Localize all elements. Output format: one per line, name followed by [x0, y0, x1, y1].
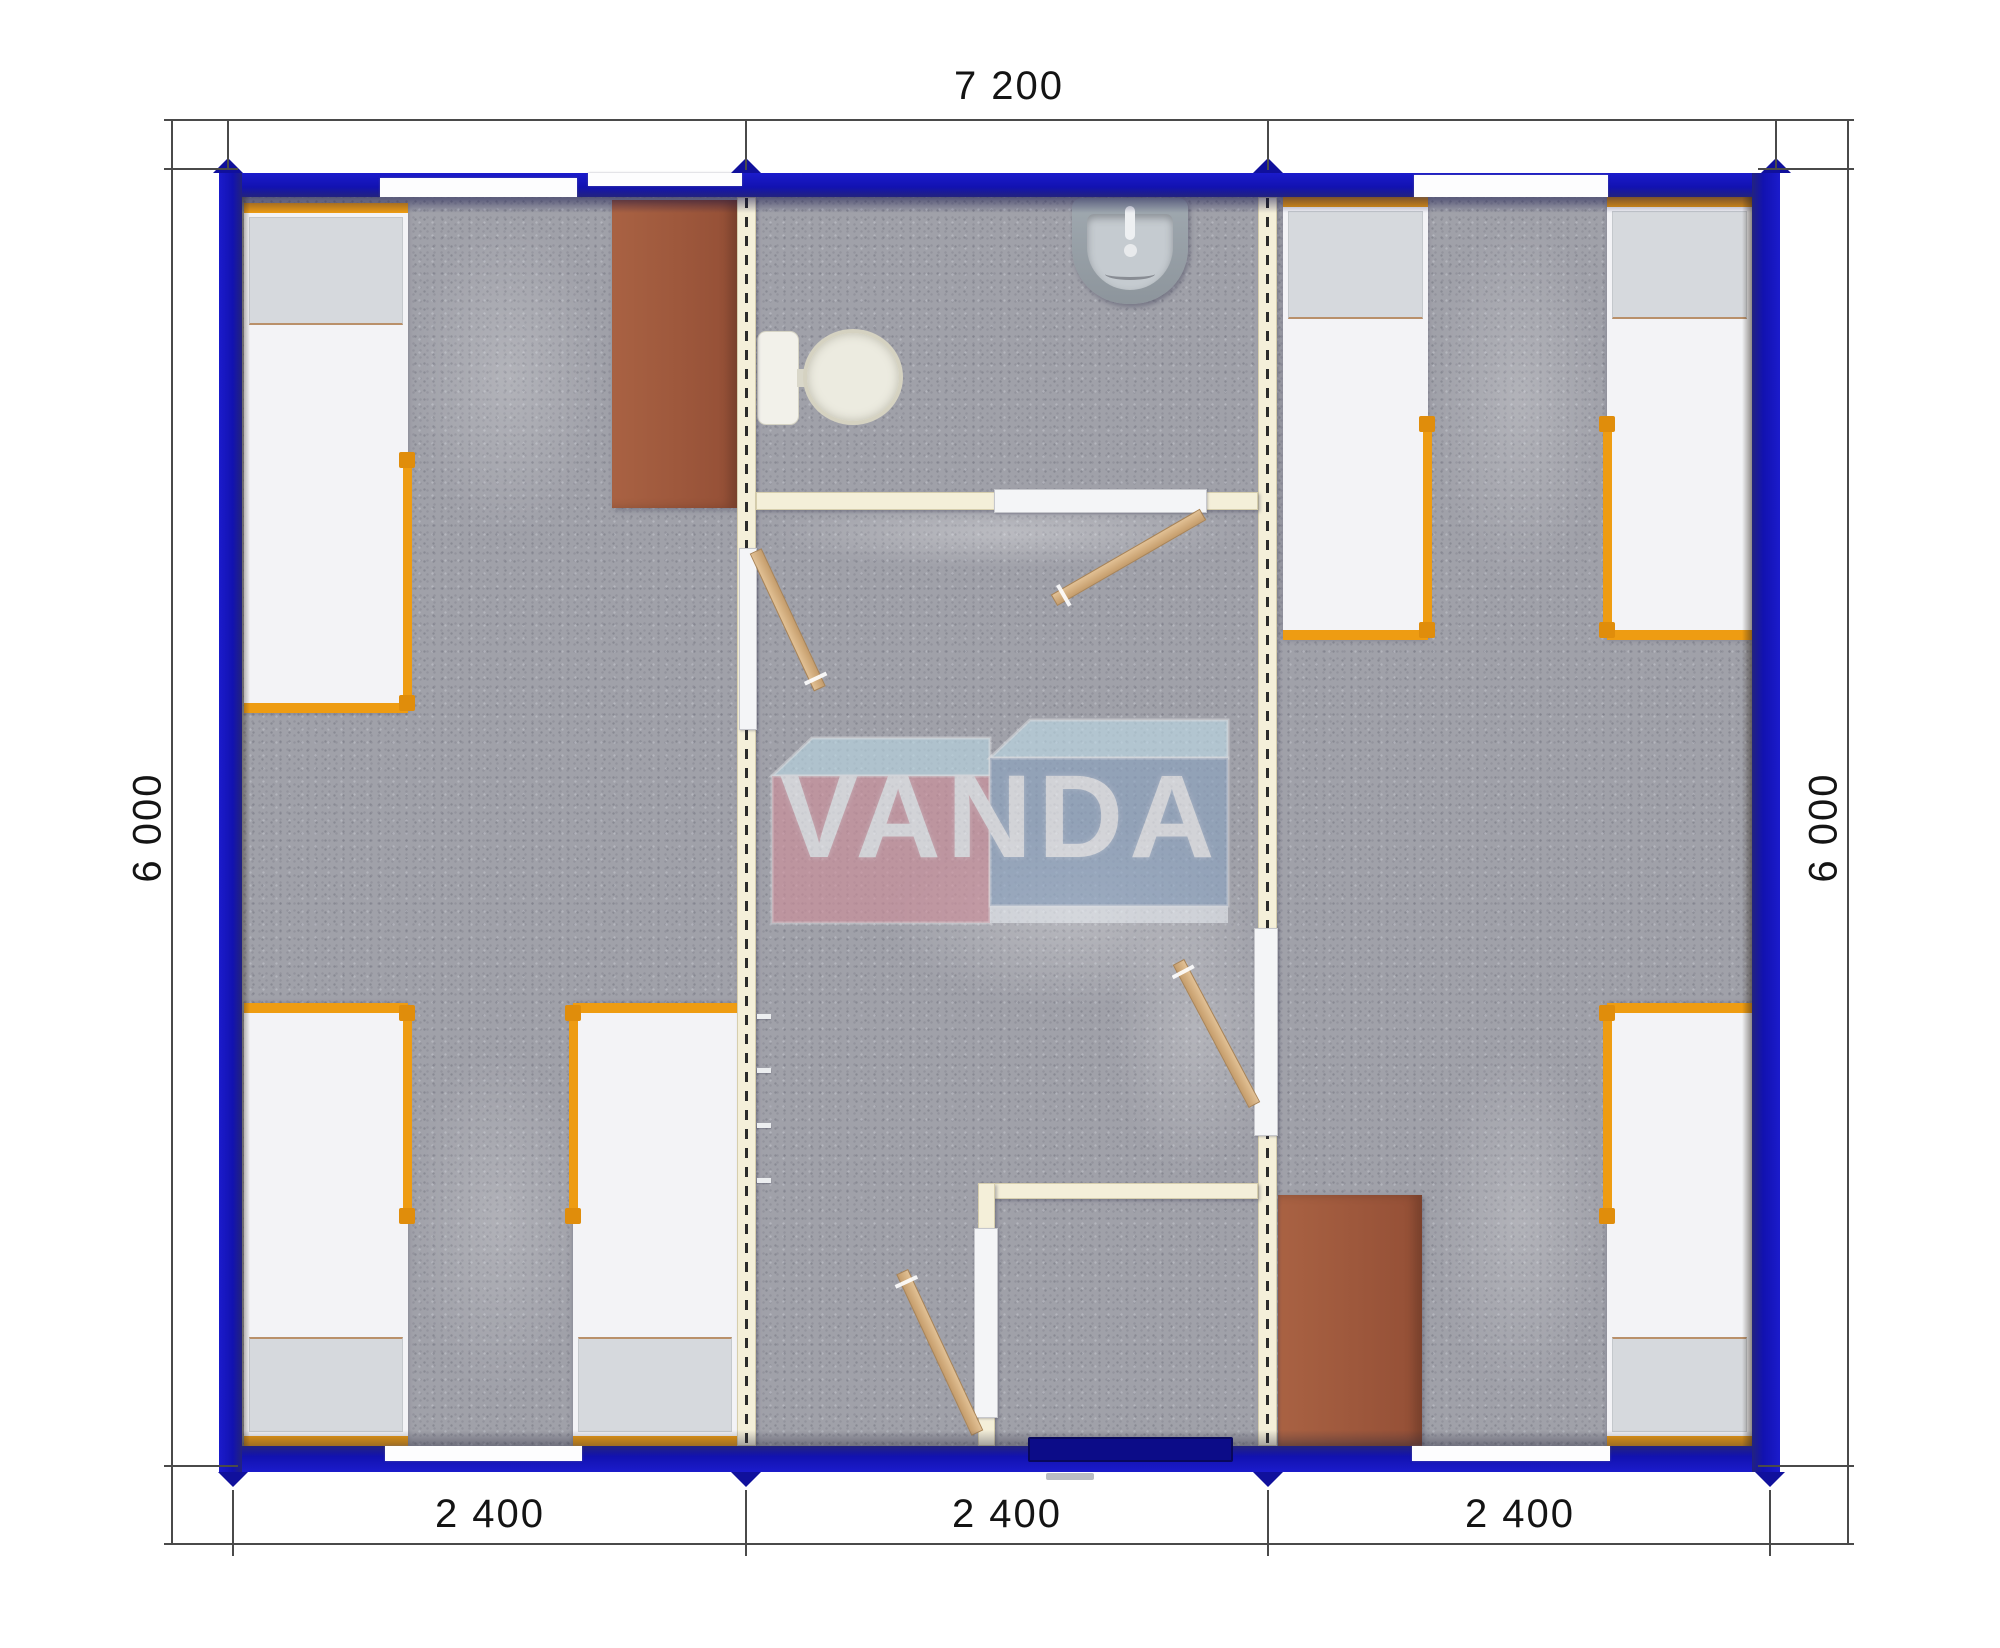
- window: [385, 1446, 582, 1461]
- bed-rail: [569, 1013, 578, 1218]
- extension-line: [1267, 120, 1269, 170]
- window: [1414, 175, 1608, 197]
- bed-post: [1599, 1208, 1615, 1224]
- desk: [1278, 1195, 1422, 1446]
- bed: [573, 1003, 737, 1446]
- bed: [244, 1003, 408, 1446]
- dimension-tick: [218, 1472, 248, 1487]
- wall-shadow: [240, 197, 1752, 213]
- entrance-threshold: [1046, 1473, 1094, 1480]
- toilet-bowl: [803, 329, 903, 425]
- partition-wall-left: [737, 197, 756, 1446]
- dimension-label-left-depth: 6 000: [126, 728, 171, 928]
- dimension-label-bay-1: 2 400: [390, 1492, 590, 1537]
- extension-line: [1769, 1490, 1771, 1556]
- bed: [244, 203, 408, 713]
- dimension-label-bay-2: 2 400: [907, 1492, 1107, 1537]
- bed-post: [399, 1208, 415, 1224]
- toilet-tank: [757, 331, 799, 425]
- floor-light-patch: [408, 1040, 588, 1400]
- dimension-line-top: [164, 119, 1854, 121]
- dimension-label-total-width: 7 200: [909, 64, 1109, 109]
- extension-line: [227, 120, 229, 170]
- door-panel: [974, 1228, 998, 1418]
- window: [588, 173, 742, 186]
- wall-hook: [757, 1014, 771, 1019]
- bed-post: [565, 1208, 581, 1224]
- window: [1412, 1446, 1610, 1461]
- dimension-line-left: [171, 119, 173, 1545]
- wall-hook: [757, 1123, 771, 1128]
- bed-post: [1419, 622, 1435, 638]
- floor-plan: VANDA: [0, 0, 2000, 1648]
- bed-rail: [403, 1013, 412, 1218]
- pillow: [1612, 211, 1747, 319]
- pillow: [1288, 211, 1423, 319]
- bed-post: [399, 1005, 415, 1021]
- sink-tap-dot: [1124, 244, 1137, 257]
- dimension-line-right: [1847, 119, 1849, 1545]
- extension-line: [745, 120, 747, 170]
- extension-line: [164, 1465, 238, 1467]
- pillow: [578, 1337, 732, 1432]
- pillow: [1612, 1337, 1747, 1432]
- wall-hook: [757, 1068, 771, 1073]
- bed-post: [565, 1005, 581, 1021]
- brand-watermark: VANDA: [764, 716, 1234, 930]
- pillow: [249, 1337, 403, 1432]
- entrance-door: [1028, 1437, 1233, 1462]
- bed: [1607, 1003, 1752, 1446]
- door-panel: [1254, 928, 1278, 1136]
- wall-centerline: [745, 198, 748, 1445]
- outer-wall-left: [219, 173, 242, 1472]
- bed-post: [399, 452, 415, 468]
- extension-line: [745, 1490, 747, 1556]
- bed-post: [1419, 416, 1435, 432]
- wall-hook: [757, 1178, 771, 1183]
- extension-line: [1775, 120, 1777, 170]
- dimension-label-right-depth: 6 000: [1802, 728, 1847, 928]
- dimension-tick: [731, 1472, 761, 1487]
- extension-line: [232, 1490, 234, 1556]
- floor-light-patch: [1430, 210, 1610, 590]
- toilet: [755, 325, 905, 433]
- logo-text: VANDA: [778, 742, 1222, 892]
- bed-post: [1599, 416, 1615, 432]
- bed: [1283, 197, 1428, 640]
- vestibule-wall-horizontal: [978, 1183, 1258, 1199]
- extension-line: [164, 168, 238, 170]
- outer-wall-right: [1752, 173, 1780, 1472]
- door-panel: [994, 489, 1207, 513]
- pillow: [249, 217, 403, 325]
- bed-rail: [1423, 422, 1432, 630]
- bed-post: [1599, 1005, 1615, 1021]
- dimension-label-bay-3: 2 400: [1420, 1492, 1620, 1537]
- extension-line: [1758, 168, 1854, 170]
- window: [380, 178, 577, 197]
- bed: [1607, 197, 1752, 640]
- desk: [612, 200, 737, 508]
- extension-line: [1267, 1490, 1269, 1556]
- partition-wall-right: [1258, 197, 1277, 1446]
- bed-rail: [403, 458, 412, 703]
- wall-shadow: [1742, 197, 1752, 1446]
- extension-line: [1758, 1465, 1854, 1467]
- bed-post: [1599, 622, 1615, 638]
- bed-post: [399, 695, 415, 711]
- sink: [1072, 198, 1188, 304]
- bed-rail: [1603, 422, 1612, 630]
- dimension-tick: [1755, 1472, 1785, 1487]
- wall-shadow: [240, 1430, 1752, 1446]
- bed-rail: [1603, 1013, 1612, 1218]
- dimension-tick: [1253, 1472, 1283, 1487]
- wall-centerline: [1266, 198, 1269, 1445]
- floor-light-patch: [408, 210, 608, 540]
- dimension-line-bottom: [164, 1543, 1854, 1545]
- door-panel: [739, 548, 757, 730]
- floor-light-patch: [1430, 1040, 1610, 1400]
- sink-drain: [1105, 268, 1155, 280]
